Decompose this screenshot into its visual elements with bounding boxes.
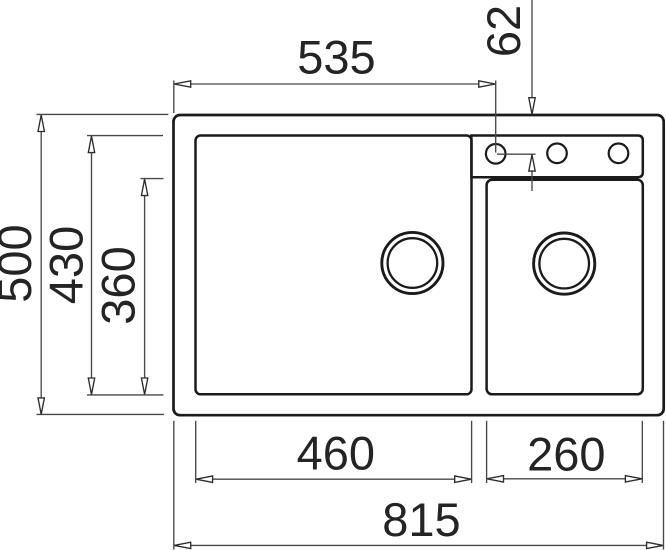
svg-text:260: 260 <box>527 428 605 481</box>
svg-text:535: 535 <box>297 31 375 84</box>
svg-text:500: 500 <box>0 224 41 302</box>
svg-text:360: 360 <box>92 246 145 324</box>
svg-text:430: 430 <box>39 226 92 304</box>
svg-text:62: 62 <box>477 5 530 57</box>
svg-text:815: 815 <box>382 493 460 546</box>
svg-text:460: 460 <box>297 427 375 480</box>
